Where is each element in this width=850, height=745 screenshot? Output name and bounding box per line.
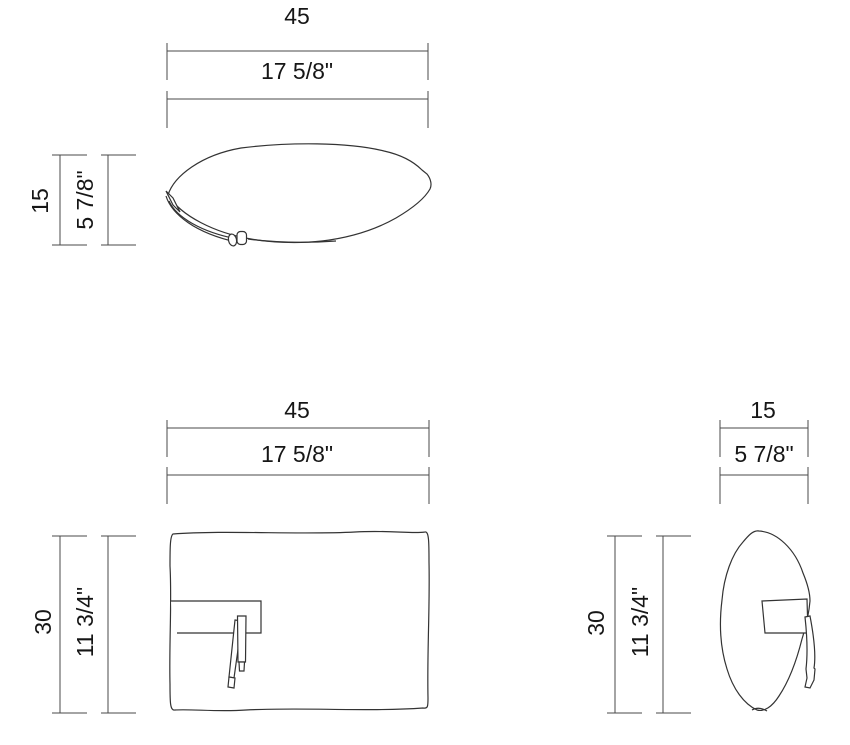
front-view-width-imperial-label: 17 5/8" <box>261 441 333 467</box>
side-view-height-imperial-dimline <box>656 536 691 713</box>
side-view-zipper-strap <box>805 616 815 688</box>
front-view-height-metric-label: 30 <box>30 609 56 635</box>
drawing-canvas: 45 17 5/8" 15 5 7/8" 45 17 5/8" 30 11 3/… <box>0 0 850 745</box>
top-view-pillow-outline <box>168 144 431 243</box>
front-view-width-imperial-dimline <box>167 467 429 504</box>
drawing-sheet: 45 17 5/8" 15 5 7/8" 45 17 5/8" 30 11 3/… <box>0 0 850 745</box>
front-view-height-imperial-dimline <box>101 536 136 713</box>
side-view-depth-metric-label: 15 <box>750 397 776 423</box>
front-view-zipper-pull-front <box>238 616 247 662</box>
side-view-depth-imperial-label: 5 7/8" <box>734 441 793 467</box>
front-view-height-imperial-label: 11 3/4" <box>72 587 98 657</box>
side-view-flap-outline <box>762 599 808 633</box>
front-view <box>52 420 429 713</box>
top-view-width-imperial-label: 17 5/8" <box>261 58 333 84</box>
top-view-width-metric-label: 45 <box>284 3 310 29</box>
top-view-zipper-slider <box>237 232 247 245</box>
top-view <box>52 43 431 247</box>
front-view-zipper-pull-rear-tab <box>228 677 235 688</box>
front-view-width-metric-label: 45 <box>284 397 310 423</box>
top-view-width-imperial-dimline <box>167 91 428 128</box>
front-view-flap-fill <box>171 601 261 633</box>
side-view-depth-imperial-dimline <box>720 467 808 504</box>
top-view-depth-imperial-dimline <box>101 155 136 245</box>
side-view-height-imperial-label: 11 3/4" <box>627 587 653 657</box>
side-view-height-metric-label: 30 <box>583 610 609 636</box>
top-view-depth-imperial-label: 5 7/8" <box>72 170 98 229</box>
top-view-depth-metric-label: 15 <box>27 188 53 214</box>
front-view-zipper-pull-front-tab <box>239 662 245 671</box>
